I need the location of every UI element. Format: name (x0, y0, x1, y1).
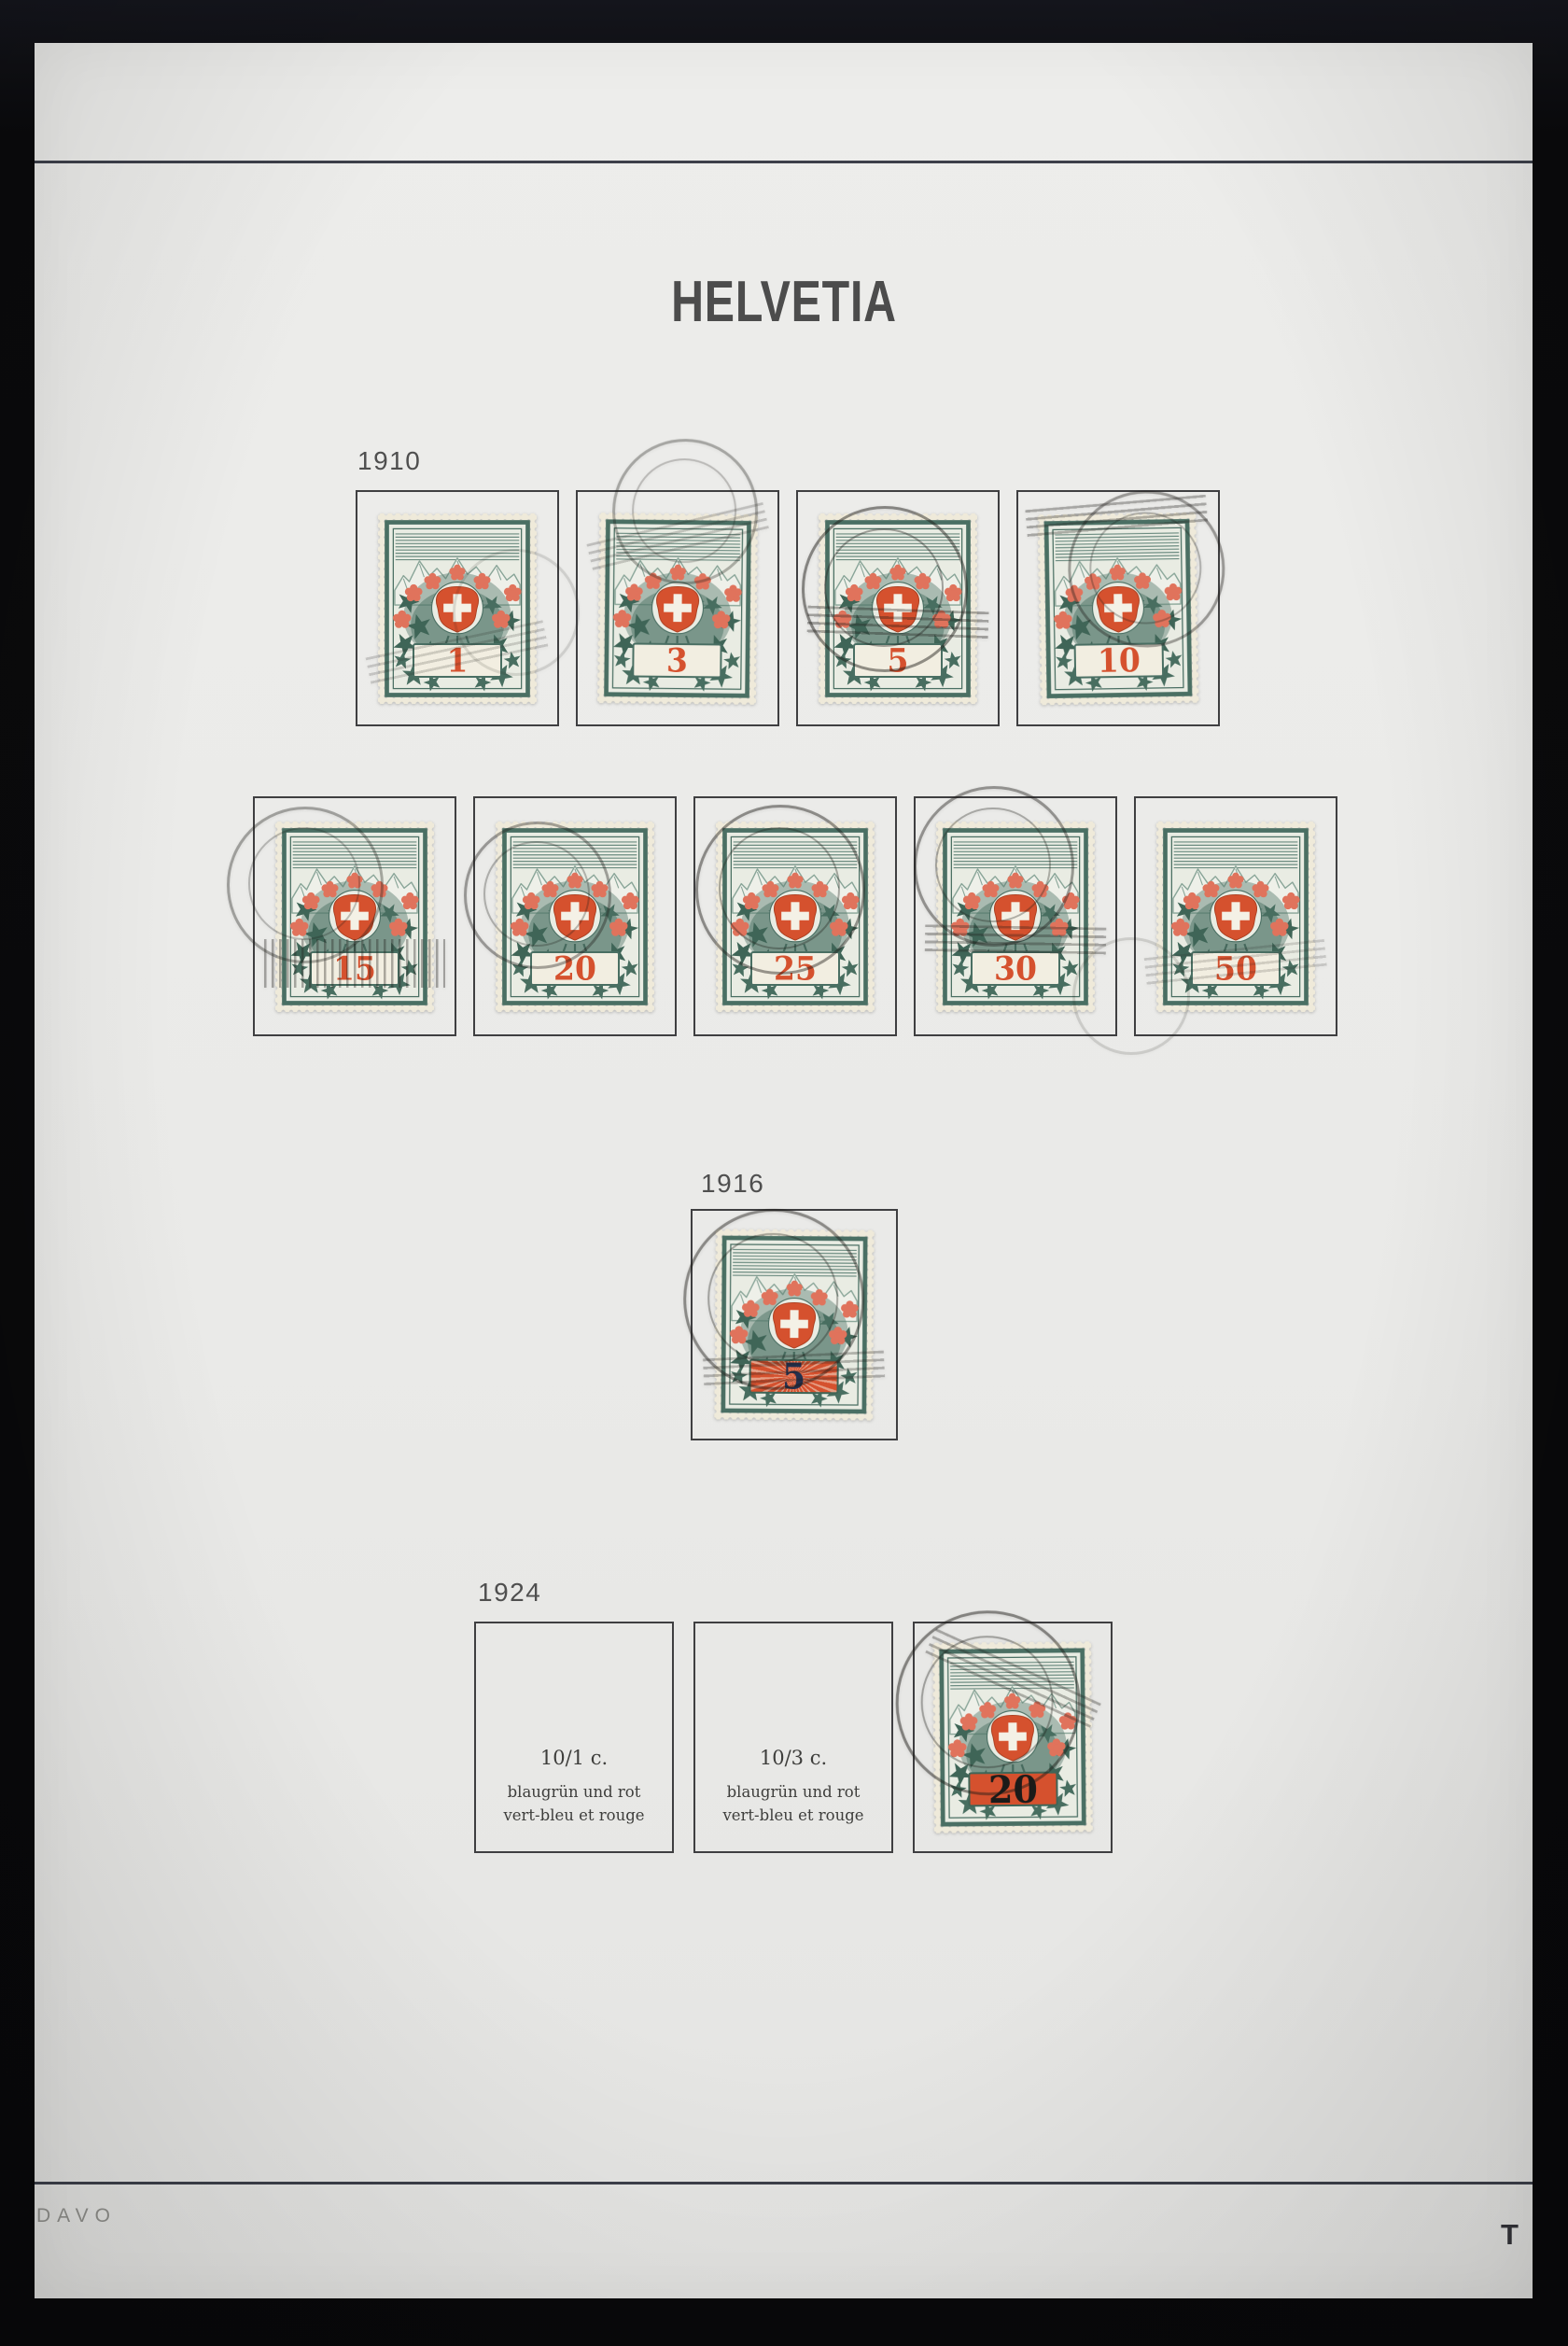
country-title: HELVETIA (671, 274, 897, 331)
empty-box-1924-10-3c: 10/3 c. blaugrün und rot vert-bleu et ro… (693, 1622, 893, 1853)
stamp-box-1910-1c: 1 (356, 490, 559, 726)
value-tablet: 20 (530, 951, 621, 986)
page-title: HELVETIA (35, 274, 1533, 331)
stamp-box-1910-30c: 30 (914, 796, 1117, 1036)
stamp-1924-20c-overprint: 20 (932, 1641, 1093, 1833)
value-tablet: 5 (749, 1359, 839, 1395)
section-year-1924: 1924 (478, 1578, 541, 1608)
empty-box-1924-10-1c: 10/1 c. blaugrün und rot vert-bleu et ro… (474, 1622, 674, 1853)
caption-color-de: blaugrün und rot (695, 1780, 891, 1805)
stamp-1910-3c: 3 (597, 513, 758, 705)
stamp-value: 20 (553, 952, 596, 985)
stamp-1916-5c-overprint: 5 (714, 1229, 874, 1420)
stamp-box-1910-10c: 10 (1016, 490, 1220, 726)
stamp-box-1910-20c: 20 (473, 796, 677, 1036)
stamp-value: 5 (888, 644, 909, 677)
value-tablet: 25 (750, 951, 841, 986)
stamp-caption: 10/3 c. blaugrün und rot vert-bleu et ro… (695, 1747, 891, 1828)
value-tablet: 50 (1191, 951, 1281, 986)
stamp-1910-15c: 15 (275, 822, 434, 1012)
value-tablet: 3 (632, 642, 722, 678)
stamp-1910-5c: 5 (819, 513, 977, 704)
stamp-1910-30c: 30 (936, 822, 1095, 1012)
stamp-value: 5 (782, 1358, 805, 1394)
stamp-1910-1c: 1 (378, 513, 537, 704)
caption-denomination: 10/1 c. (476, 1747, 672, 1769)
top-rule (35, 161, 1533, 163)
stamp-value: 15 (333, 952, 376, 985)
caption-denomination: 10/3 c. (695, 1747, 891, 1769)
album-photo: HELVETIA 1910 1 (0, 0, 1568, 2346)
value-tablet: 5 (853, 643, 944, 678)
stamp-row-1916: 5 (691, 1209, 898, 1440)
stamp-1910-10c: 10 (1037, 512, 1198, 705)
album-page: HELVETIA 1910 1 (35, 43, 1533, 2298)
section-year-1916: 1916 (701, 1169, 764, 1199)
stamp-box-1924-20c: 20 (913, 1622, 1113, 1853)
stamp-row-1910-a: 1 3 (356, 490, 1220, 726)
publisher-mark: DAVO (36, 2205, 117, 2227)
value-tablet: 30 (971, 951, 1061, 986)
stamp-box-1910-5c: 5 (796, 490, 1000, 726)
section-year-1910: 1910 (357, 446, 421, 476)
stamp-box-1910-3c: 3 (576, 490, 779, 726)
value-tablet: 1 (413, 643, 503, 678)
stamp-caption: 10/1 c. blaugrün und rot vert-bleu et ro… (476, 1747, 672, 1828)
stamp-value: 20 (988, 1770, 1038, 1808)
stamp-value: 3 (666, 643, 688, 676)
bottom-rule (35, 2182, 1533, 2184)
value-tablet: 15 (310, 951, 400, 986)
stamp-value: 30 (994, 952, 1037, 985)
stamp-value: 50 (1214, 952, 1257, 985)
stamp-box-1916-5c: 5 (691, 1209, 898, 1440)
stamp-value: 25 (774, 952, 817, 985)
stamp-row-1924: 10/1 c. blaugrün und rot vert-bleu et ro… (474, 1622, 1113, 1853)
caption-color-de: blaugrün und rot (476, 1780, 672, 1805)
value-tablet: 10 (1073, 642, 1164, 679)
page-letter: T (1501, 2218, 1519, 2252)
caption-color-fr: vert-bleu et rouge (476, 1804, 672, 1828)
stamp-value: 10 (1098, 643, 1141, 677)
stamp-1910-20c: 20 (496, 822, 654, 1012)
stamp-1910-25c: 25 (716, 822, 875, 1012)
stamp-1910-50c: 50 (1156, 822, 1315, 1012)
value-tablet: 20 (968, 1772, 1058, 1807)
stamp-box-1910-50c: 50 (1134, 796, 1337, 1036)
stamp-value: 1 (447, 644, 469, 677)
caption-color-fr: vert-bleu et rouge (695, 1804, 891, 1828)
stamp-row-1910-b: 15 20 (253, 796, 1337, 1036)
stamp-box-1910-25c: 25 (693, 796, 897, 1036)
stamp-box-1910-15c: 15 (253, 796, 456, 1036)
